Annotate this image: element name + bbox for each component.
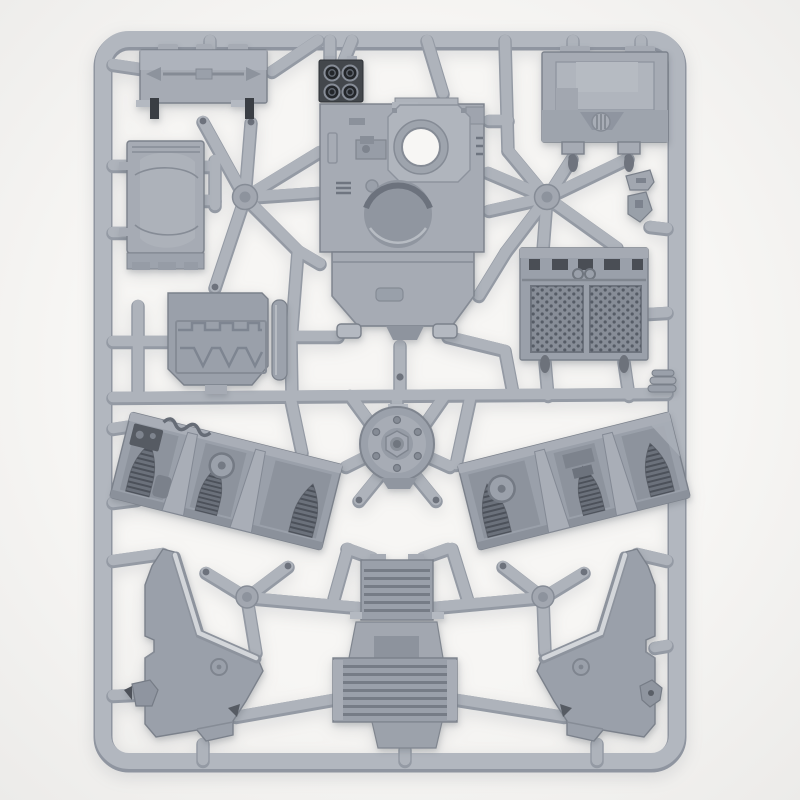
sprue	[103, 39, 690, 763]
ramp-upper-section	[350, 554, 444, 620]
small-clip	[628, 192, 652, 222]
junction-boss	[233, 185, 258, 210]
turret-ring-hole	[402, 128, 440, 166]
left-interior-tray	[110, 409, 344, 550]
dark-clip	[150, 98, 159, 119]
zigzag-armour-panel	[168, 293, 287, 394]
dark-clip	[245, 98, 254, 119]
sprue-photo	[0, 0, 800, 800]
ramp-ribs	[364, 566, 430, 616]
top-right-access-panel	[542, 46, 668, 172]
junction-boss	[532, 586, 554, 608]
hull-top-assembly	[319, 56, 484, 340]
hex-mesh-grille-right	[590, 286, 641, 352]
intake-grille-panel	[520, 248, 648, 373]
floor-panel	[119, 141, 204, 270]
disc-stack	[648, 370, 676, 392]
hex-mesh-grille-left	[531, 286, 583, 352]
right-interior-tray	[457, 412, 690, 550]
ramp-ribs	[343, 664, 447, 716]
junction-boss	[236, 586, 258, 608]
cylinder-strip	[272, 300, 287, 380]
ramp-bottom-tab	[372, 722, 442, 748]
recessed-circle	[364, 180, 432, 248]
ramp-lower-section	[333, 622, 457, 748]
roof-hatch-panel	[136, 44, 267, 119]
small-bracket	[626, 170, 654, 190]
hull-lower-plate	[332, 252, 474, 326]
junction-boss	[535, 185, 560, 210]
